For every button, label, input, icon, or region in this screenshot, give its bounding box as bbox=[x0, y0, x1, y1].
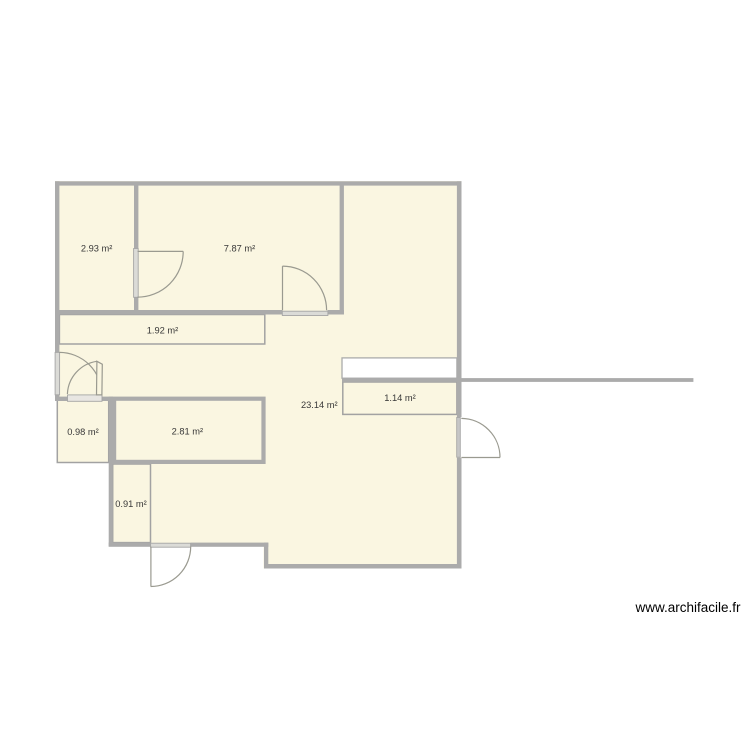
svg-text:1.14 m²: 1.14 m² bbox=[384, 393, 416, 403]
svg-text:0.98 m²: 0.98 m² bbox=[67, 427, 99, 437]
svg-text:0.91 m²: 0.91 m² bbox=[115, 499, 147, 509]
svg-text:2.93 m²: 2.93 m² bbox=[81, 244, 113, 254]
svg-text:7.87 m²: 7.87 m² bbox=[224, 244, 256, 254]
svg-text:2.81 m²: 2.81 m² bbox=[172, 426, 204, 436]
svg-text:23.14 m²: 23.14 m² bbox=[301, 400, 338, 410]
svg-text:1.92 m²: 1.92 m² bbox=[147, 325, 179, 335]
svg-text:www.archifacile.fr: www.archifacile.fr bbox=[634, 600, 741, 615]
